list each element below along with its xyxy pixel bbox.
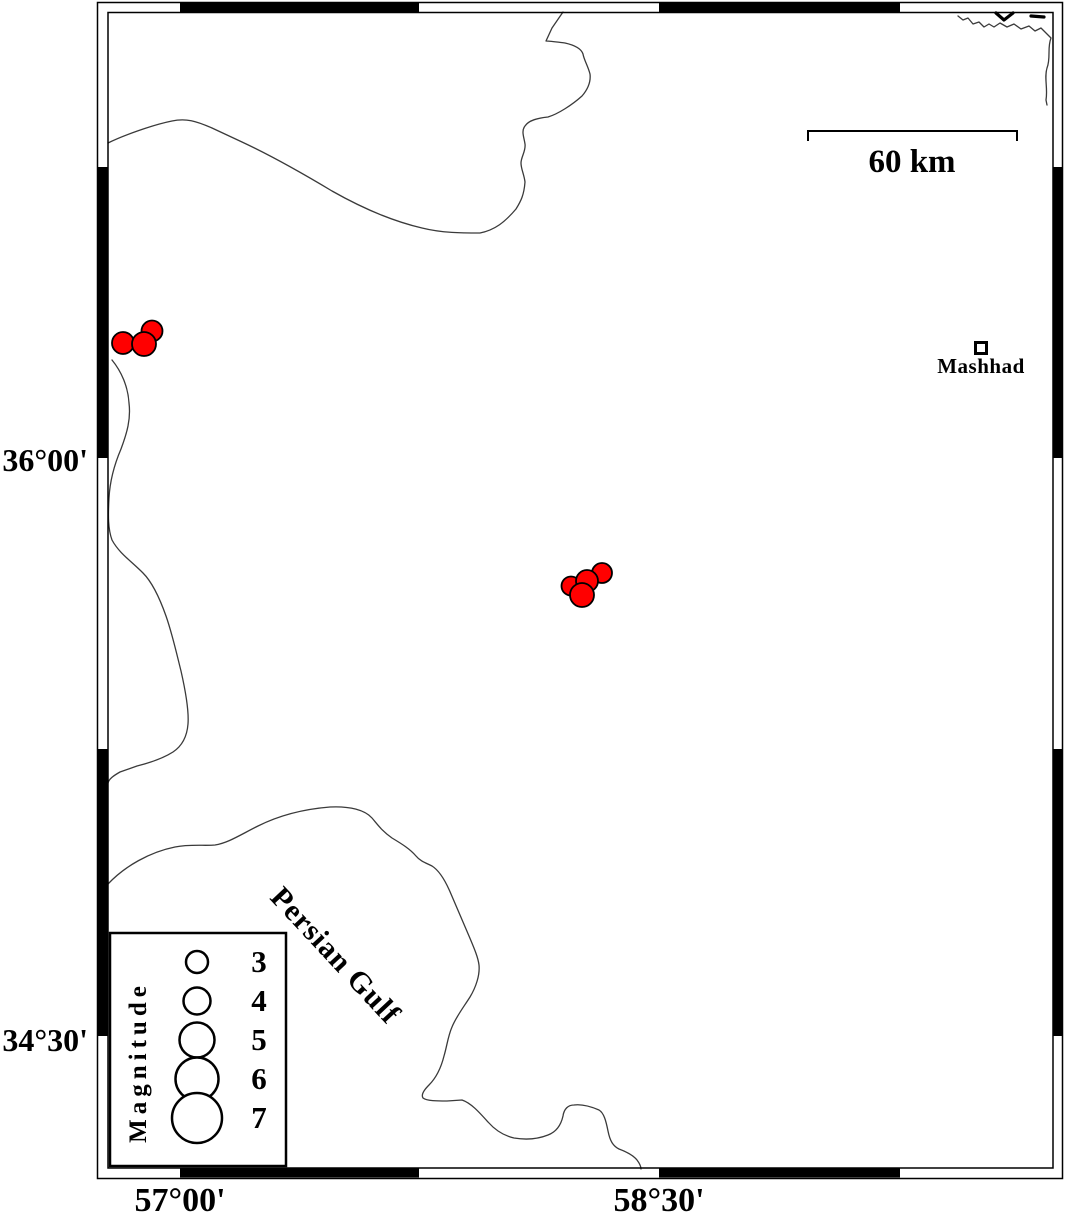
legend-value-4: 4 [236, 983, 282, 1019]
earthquake-epicenter [132, 332, 156, 356]
legend-value-7: 7 [236, 1100, 282, 1136]
legend-circle-mag-3 [186, 951, 208, 973]
map-canvas [0, 0, 1066, 1218]
earthquake-epicenter [112, 332, 134, 354]
lon-label-58-30: 58°30' [613, 1182, 704, 1218]
border-stroke-dash [1031, 16, 1044, 17]
earthquake-epicenter [570, 583, 594, 607]
scale-bar-label: 60 km [868, 144, 955, 181]
legend-value-6: 6 [236, 1061, 282, 1097]
coastline-topright [958, 16, 1051, 105]
legend-circle-mag-4 [184, 988, 211, 1015]
legend-title: Magnitude [125, 981, 153, 1143]
earthquake-markers [112, 321, 612, 608]
lat-label-36-00: 36°00' [0, 441, 88, 479]
seismicity-map: 36°00' 34°30' 57°00' 58°30' 60 km Mashha… [0, 0, 1066, 1218]
legend-circle-mag-5 [180, 1023, 215, 1058]
border-stroke-v [996, 13, 1013, 20]
city-label-mashhad: Mashhad [937, 354, 1025, 379]
city-marker-square [976, 343, 987, 354]
lon-label-57-00: 57°00' [134, 1182, 225, 1218]
legend-value-3: 3 [236, 944, 282, 980]
scale-bar [808, 131, 1017, 141]
legend-value-5: 5 [236, 1022, 282, 1058]
legend-circle-mag-7 [172, 1093, 222, 1143]
coastline-north [108, 12, 590, 233]
lat-label-34-30: 34°30' [0, 1021, 88, 1059]
coastline-left [108, 360, 188, 783]
